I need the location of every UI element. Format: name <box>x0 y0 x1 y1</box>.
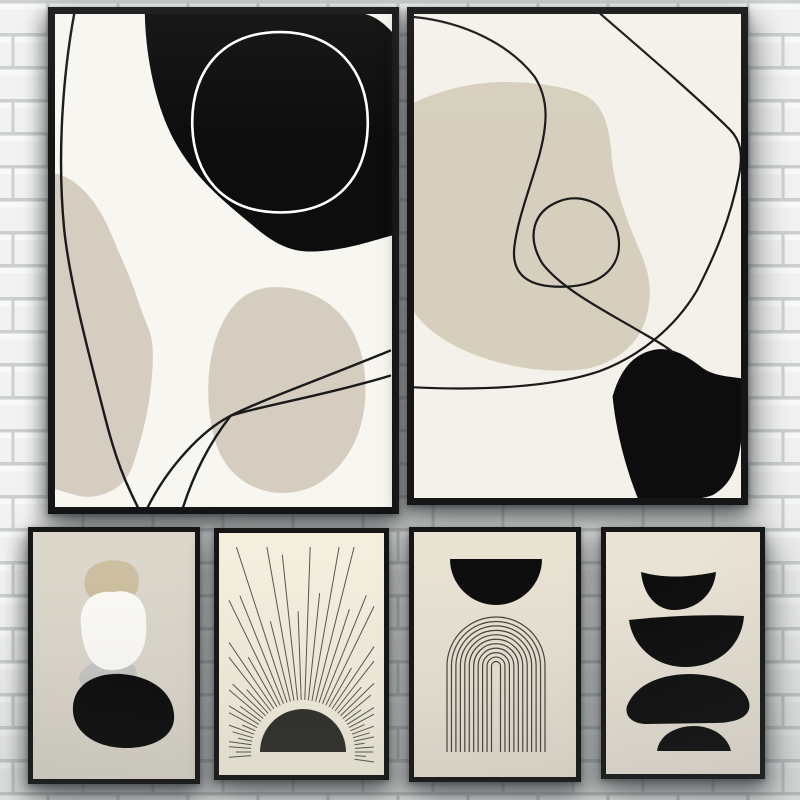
artwork-shape <box>208 287 365 493</box>
poster-artwork <box>414 532 576 777</box>
poster-stacked-pebbles <box>28 527 200 784</box>
poster-artwork <box>606 532 760 774</box>
poster-artwork <box>55 14 392 507</box>
poster-abstract-blobs-left <box>48 7 399 514</box>
poster-half-discs <box>601 527 765 779</box>
poster-artwork <box>219 533 384 775</box>
poster-artwork <box>414 14 741 498</box>
poster-sun-rays <box>214 528 389 780</box>
poster-abstract-loop-right <box>407 7 748 505</box>
poster-artwork <box>33 532 195 779</box>
poster-arch-lines <box>409 527 581 782</box>
artwork-shape <box>81 591 147 670</box>
product-photo-poster-wall <box>0 0 800 800</box>
